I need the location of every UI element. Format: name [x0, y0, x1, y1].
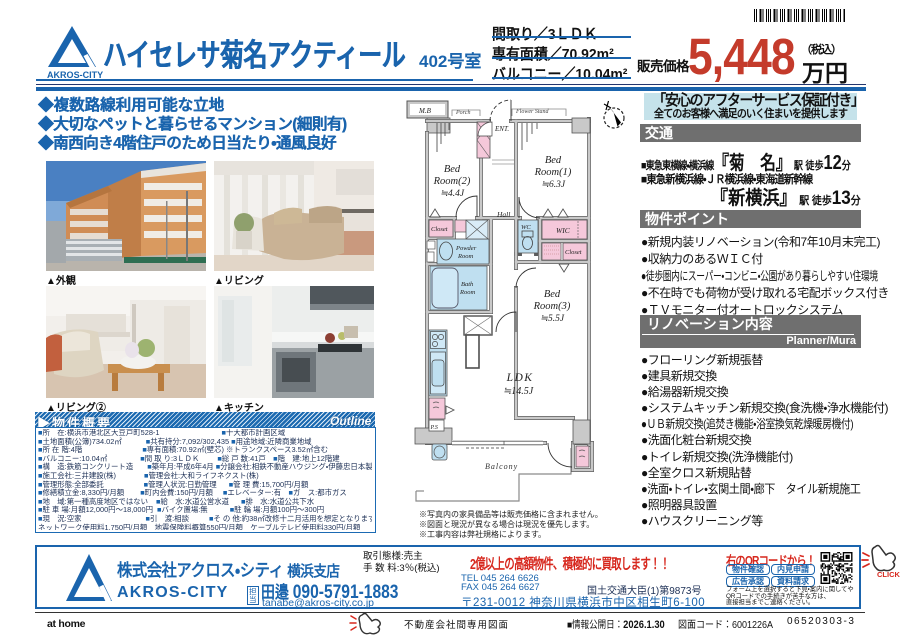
svg-text:※図面と現況が異なる場合は現況を優先します。: ※図面と現況が異なる場合は現況を優先します。	[419, 519, 594, 529]
svg-text:WIC: WIC	[556, 226, 571, 235]
svg-text:≒5.5J: ≒5.5J	[540, 314, 565, 324]
svg-text:ENT.: ENT.	[494, 125, 509, 133]
svg-text:Bath: Bath	[461, 281, 473, 288]
svg-text:CLICK: CLICK	[877, 570, 900, 579]
svg-text:WC: WC	[521, 224, 531, 231]
svg-text:Room: Room	[459, 289, 475, 296]
svg-text:Room(2): Room(2)	[433, 176, 471, 187]
svg-text:Hall: Hall	[496, 210, 510, 219]
svg-text:Room(3): Room(3)	[533, 301, 571, 312]
svg-text:≒6.3J: ≒6.3J	[541, 180, 566, 190]
svg-text:Balcony: Balcony	[485, 462, 518, 471]
svg-text:Powder: Powder	[455, 245, 477, 252]
svg-text:Bed: Bed	[545, 155, 562, 166]
svg-text:P.S: P.S	[430, 425, 438, 431]
svg-text:Flower Stand: Flower Stand	[515, 109, 549, 115]
svg-text:※写真内の家具備品等は販売価格に含まれません。: ※写真内の家具備品等は販売価格に含まれません。	[419, 509, 603, 519]
svg-text:Closet: Closet	[431, 226, 448, 233]
svg-text:※工事内容は弊社規格によります。: ※工事内容は弊社規格によります。	[419, 529, 546, 539]
svg-text:Bed: Bed	[544, 289, 561, 300]
svg-text:Room(1): Room(1)	[534, 167, 572, 178]
svg-text:LDK: LDK	[506, 372, 534, 384]
svg-text:Porch: Porch	[455, 110, 470, 116]
svg-text:M.B: M.B	[418, 107, 432, 115]
svg-text:Room: Room	[457, 253, 473, 260]
svg-text:≒4.4J: ≒4.4J	[440, 189, 465, 199]
svg-text:Closet: Closet	[565, 249, 582, 256]
svg-text:≒14.5J: ≒14.5J	[503, 386, 534, 397]
svg-text:Bed: Bed	[444, 164, 461, 175]
